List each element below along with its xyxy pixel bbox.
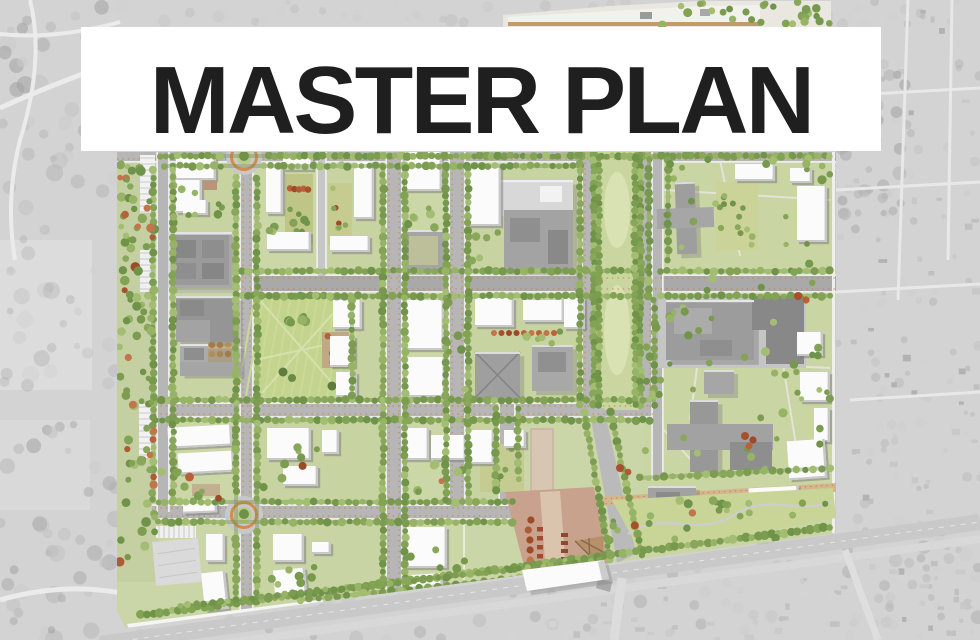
- svg-text:MASTER PLAN: MASTER PLAN: [150, 47, 813, 154]
